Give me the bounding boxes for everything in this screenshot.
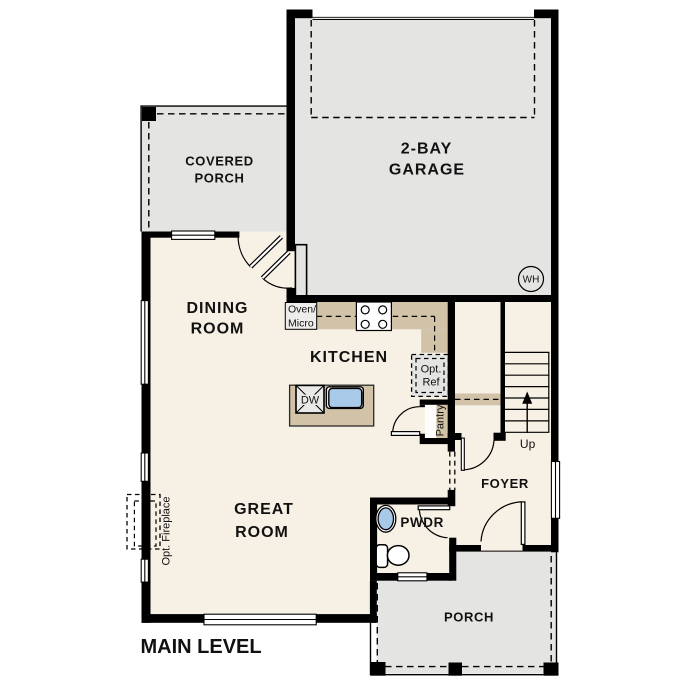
svg-text:Pantry: Pantry [435,404,447,436]
svg-text:Ref: Ref [422,376,440,388]
svg-text:WH: WH [523,275,540,286]
svg-text:DINING: DINING [187,300,249,317]
svg-text:Up: Up [520,437,536,451]
svg-text:ROOM: ROOM [235,524,289,541]
svg-text:DW: DW [301,395,320,407]
svg-text:Opt. Fireplace: Opt. Fireplace [161,496,173,565]
svg-text:PWDR: PWDR [400,515,444,530]
svg-text:GREAT: GREAT [234,501,294,518]
svg-text:Opt.: Opt. [421,363,442,375]
svg-text:MAIN LEVEL: MAIN LEVEL [141,636,262,658]
svg-text:PORCH: PORCH [444,610,494,625]
svg-text:KITCHEN: KITCHEN [310,349,388,366]
svg-text:PORCH: PORCH [195,171,245,186]
svg-text:Oven/: Oven/ [288,304,316,316]
svg-text:ROOM: ROOM [191,321,245,338]
svg-text:FOYER: FOYER [481,476,529,491]
svg-text:Micro: Micro [288,318,314,330]
svg-text:COVERED: COVERED [185,154,254,169]
svg-text:GARAGE: GARAGE [389,162,465,179]
svg-text:2-BAY: 2-BAY [401,141,453,158]
